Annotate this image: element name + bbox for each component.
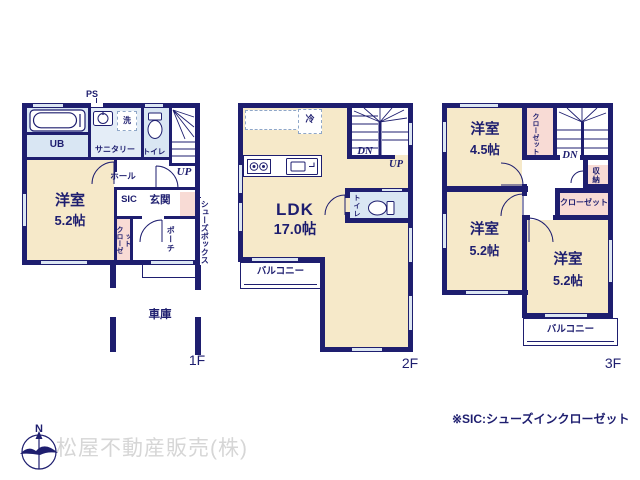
refrigerator-label: 冷 (298, 114, 322, 124)
wall (522, 155, 560, 160)
sanitary-label: サニタリー (87, 145, 143, 154)
wall (522, 216, 527, 318)
floor-2-label: 2F (393, 355, 427, 371)
window-marker (408, 228, 413, 262)
window-marker (145, 103, 163, 108)
toilet-label: トイレ (352, 194, 360, 218)
door-arc (570, 170, 584, 184)
ub-label: UB (35, 139, 79, 151)
room3-name-label: 洋室 (528, 252, 608, 269)
wall (522, 108, 527, 158)
window-marker (352, 347, 382, 352)
porch-step-line (142, 265, 143, 277)
ldk-name-label: LDK (240, 200, 350, 220)
stairs-up-label: UP (171, 166, 197, 178)
window-marker (408, 296, 413, 330)
room1-size-label: 4.5帖 (450, 143, 520, 157)
stairs-down-label: DN (352, 146, 378, 157)
door-arc (500, 193, 524, 217)
wall (553, 215, 613, 220)
closet-label: クローゼット (560, 198, 608, 207)
bathtub-icon (29, 109, 86, 132)
window-marker (33, 103, 63, 108)
toilet-icon (367, 199, 395, 217)
garage-wall (110, 265, 116, 288)
door-arc (500, 162, 524, 186)
window-marker (466, 290, 508, 295)
window-marker (22, 194, 27, 226)
balcony-rail-line (527, 341, 614, 342)
window-marker (442, 214, 447, 248)
wall (442, 186, 528, 192)
window-marker (41, 260, 87, 265)
toilet-label: トイレ (139, 148, 169, 157)
closet-label: クローゼット (115, 224, 130, 256)
wall (555, 188, 613, 193)
room2-size-label: 5.2帖 (447, 244, 522, 258)
garage-wall (110, 317, 116, 352)
balcony-rail-line (244, 284, 317, 285)
wall (608, 108, 613, 318)
ldk-size-label: 17.0帖 (240, 222, 350, 239)
window-marker (238, 165, 243, 193)
washbasin-icon (93, 111, 113, 128)
window-marker (608, 240, 613, 282)
ps-notch (90, 103, 104, 108)
wall (27, 157, 172, 160)
shoebox-label: シューズボックス (200, 196, 209, 268)
kitchen-sink-icon (286, 158, 318, 175)
compass-north-label: N (35, 423, 43, 435)
garage-wall (195, 317, 201, 355)
floor-1-plan: 洗 UB サニタリー トイレ UP ホール 洋室 5.2帖 SIC 玄関 クロー… (22, 103, 200, 265)
door-arc (528, 217, 554, 243)
porch-label: ポーチ (166, 222, 175, 256)
staircase-icon (557, 108, 608, 155)
window-marker (460, 103, 498, 108)
garage-label: 車庫 (138, 309, 182, 322)
floorplan-page: PS 洗 UB サニタリー トイレ UP (0, 0, 640, 480)
window-marker (151, 260, 193, 265)
floor-1-label: 1F (180, 352, 214, 368)
window-marker (238, 203, 243, 231)
window-marker (408, 123, 413, 145)
balcony-label: バルコニー (528, 325, 613, 336)
room-size-label: 5.2帖 (35, 214, 105, 229)
ps-label: PS (82, 89, 102, 99)
stairs-up-label: UP (383, 159, 409, 170)
ldk-area (325, 257, 408, 347)
room3-size-label: 5.2帖 (528, 274, 608, 288)
closet-label: クローゼット (531, 111, 539, 157)
hall-label: ホール (100, 172, 146, 182)
window-marker (382, 188, 402, 192)
sic-label: SIC (116, 195, 142, 206)
room-name-label: 洋室 (35, 192, 105, 209)
stairs-down-label: DN (556, 150, 584, 161)
sic-note: ※SIC:シューズインクローゼット (452, 413, 629, 427)
floor-3-label: 3F (596, 355, 630, 371)
wall (114, 216, 142, 219)
porch-step-line (142, 277, 198, 278)
entrance-label: 玄関 (144, 194, 176, 206)
toilet-icon (146, 112, 164, 140)
shoebox-area (180, 192, 195, 216)
washer-label: 洗 (117, 116, 137, 125)
counter-outline (245, 110, 301, 130)
room1-name-label: 洋室 (450, 122, 520, 139)
door-arc (139, 219, 163, 243)
wall (345, 218, 408, 223)
staircase-icon (172, 108, 195, 163)
window-marker (545, 313, 587, 318)
room2-name-label: 洋室 (447, 222, 522, 239)
wall (164, 216, 195, 219)
stove-icon (247, 159, 271, 174)
window-marker (252, 257, 298, 262)
window-marker (442, 122, 447, 152)
balcony-label: バルコニー (242, 267, 319, 278)
storage-label: 収納 (591, 166, 600, 184)
company-name: 松屋不動産販売(株) (56, 437, 248, 461)
shoebox-leader-line (195, 197, 201, 198)
wall (27, 132, 88, 135)
